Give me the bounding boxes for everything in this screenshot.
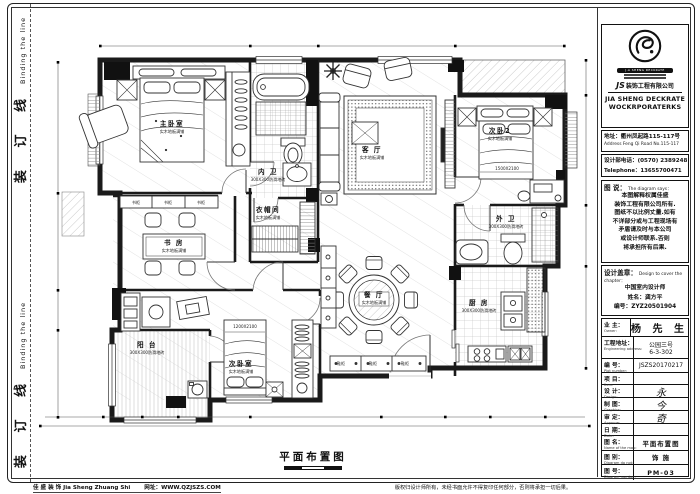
living-sofa <box>319 93 340 205</box>
row-label: 设 计：Design: <box>602 385 634 397</box>
small-label: 书柜 <box>197 199 205 205</box>
room-floor-spec: 实木地板满铺 <box>256 214 281 220</box>
row-value: JSZS20170217 <box>634 359 688 372</box>
small-label: 鞋柜 <box>401 360 409 366</box>
room-label: 阳 台 <box>137 340 157 349</box>
footer-company: 佳 盛 装 饰 Jia Sheng Zhuang Shi网址：WWW.QZJSZ… <box>33 483 221 493</box>
coffee-table <box>352 122 378 144</box>
room-label: 餐 厅 <box>364 290 384 299</box>
seal-text: 中国室内设计师姓名：龚方平编号：ZYZ20501904 <box>604 284 686 313</box>
company-logo-icon <box>625 27 665 65</box>
plan-title-block: 平面布置图 <box>263 449 363 470</box>
notes-header: 图 说： The diagram says： <box>604 182 686 192</box>
address-en: Address Feng Qi Road No.115-117 <box>604 142 686 147</box>
binding-cn: 装 订 线 <box>14 375 29 468</box>
floor-plan: 主卧室实木地板满铺内 卫300X300防滑地砖衣帽间实木地板满铺客 厅实木地板满… <box>33 8 595 474</box>
title-block-row: 制 图：Graphics:今 <box>602 398 688 411</box>
room-label: 主卧室 <box>160 119 184 128</box>
footer-copyright: 版权归设计师所有，未经书面允许不得复印任何部分，否则将承担一切后果。 <box>368 484 598 491</box>
room-floor-spec: 实木地板满铺 <box>160 128 185 134</box>
title-block-row: 编 号：Plot number:JSZS20170217 <box>602 359 688 373</box>
row-value: PM-03 <box>634 465 688 480</box>
logo-divider <box>608 92 682 93</box>
logo-tagline-bars <box>620 74 670 79</box>
notes-line: 本图解释权属佳盛 <box>604 192 686 201</box>
room-floor-spec: 实木地板满铺 <box>162 247 187 253</box>
notes-line: 或设计师联系.否则 <box>604 235 686 244</box>
small-label: 1200X2100 <box>233 324 257 329</box>
terrace-hatch <box>462 60 565 93</box>
row-value: 公园三号6-3-302 <box>634 337 688 358</box>
basin-inner <box>283 163 311 186</box>
binding-text-top: 装 订 线Binding the line <box>10 15 26 185</box>
room-floor-spec: 300X300防滑地砖 <box>462 307 497 313</box>
title-block-row: 图 号：Diagram number:PM-03 <box>602 465 688 480</box>
drawing-sheet: 装 订 线Binding the line 装 订 线Binding the l… <box>0 0 700 494</box>
row-value: 永 <box>634 385 688 397</box>
room-label: 客 厅 <box>361 145 382 154</box>
footer-website: 网址：WWW.QZJSZS.COM <box>144 485 221 491</box>
row-label: 图 号：Diagram number: <box>602 465 634 480</box>
small-label: 书柜 <box>164 199 172 205</box>
phone-cn: 设计部电话：(0570) 2389248 <box>604 156 686 164</box>
company-name-en-2: WOCKRPORATERKS <box>602 103 688 111</box>
small-label: 1500X2100 <box>495 166 519 171</box>
room-label: 衣帽间 <box>256 205 280 214</box>
room-floor-spec: 实木地板满铺 <box>360 154 385 160</box>
binding-en: Binding the line <box>19 302 27 369</box>
row-label: 工程地址：Engineering address: <box>602 337 634 358</box>
ac-platform <box>62 192 84 236</box>
master-wardrobe <box>226 72 250 166</box>
company-name-cn: JS装饰工程有限公司 <box>602 81 688 90</box>
title-block-row: 项 目：Item: <box>602 373 688 385</box>
room-floor-spec: 实木地板满铺 <box>488 135 513 141</box>
notes-line: 图纸不以比例丈量.如有 <box>604 209 686 218</box>
title-block-row: 业 主：Owner:杨 先 生 <box>602 319 688 337</box>
company-logo-box: J.A SHENG DECKRATE JS装饰工程有限公司 JIA SHENG … <box>601 24 689 128</box>
room-floor-spec: 300X300防滑地砖 <box>251 176 286 182</box>
small-label: 鞋柜 <box>337 360 345 366</box>
row-value: 平面布置图 <box>634 436 688 450</box>
binding-cn: 装 订 线 <box>14 90 29 183</box>
row-label: 项 目：Item: <box>602 373 634 384</box>
room-floor-spec: 实木地板满铺 <box>362 299 387 305</box>
company-name-en-1: JIA SHENG DECKRATE <box>602 95 688 103</box>
row-value <box>634 373 688 384</box>
title-block-table: 业 主：Owner:杨 先 生工程地址：Engineering address:… <box>601 318 689 477</box>
design-seal-box: 设计盖章： Design to cover the chapter： 中国室内设… <box>601 265 689 316</box>
bedroom3-bed <box>224 320 266 395</box>
row-label: 审 定：Approve: <box>602 411 634 423</box>
address-box: 地址：衢州凤起路115-117号 Address Feng Qi Road No… <box>601 130 689 152</box>
title-block-row: 图 别：Diagram do not:饰 施 <box>602 451 688 465</box>
address-cn: 地址：衢州凤起路115-117号 <box>604 132 686 140</box>
room-floor-spec: 300X300防滑地砖 <box>130 349 165 355</box>
seal-line: 编号：ZYZ20501904 <box>604 303 686 313</box>
living-rug <box>344 96 436 194</box>
row-value: 奇 <box>634 411 688 423</box>
logo-badge: J.A SHENG DECKRATE <box>617 68 673 73</box>
room-floor-spec: 300X300防滑地砖 <box>489 223 524 229</box>
phone-en: Telephone：13655700471 <box>604 166 686 174</box>
binding-en: Binding the line <box>19 17 27 84</box>
row-value <box>634 424 688 435</box>
sideboard <box>321 246 336 328</box>
seal-line: 中国室内设计师 <box>604 284 686 294</box>
bedroom3-wardrobe <box>292 320 313 398</box>
bathtub <box>253 74 309 100</box>
notes-text: 本图解释权属佳盛装饰工程有限公司所有.图纸不以比例丈量.如有不详部分或与工程现场… <box>604 192 686 252</box>
row-label: 图 名：Name of the map: <box>602 436 634 450</box>
row-value: 杨 先 生 <box>631 319 688 336</box>
logo-monogram: JS <box>616 81 625 90</box>
floor-ac-unit <box>266 382 283 397</box>
notes-line: 装饰工程有限公司所有. <box>604 201 686 210</box>
binding-text-bottom: 装 订 线Binding the line <box>10 300 26 470</box>
washing-machine <box>188 381 207 398</box>
scale-bar <box>263 466 363 470</box>
room-floor-spec: 实木地板满铺 <box>229 368 254 374</box>
title-block-row: 工程地址：Engineering address:公园三号6-3-302 <box>602 337 688 359</box>
room-label: 次卧室 <box>229 359 253 368</box>
title-block: J.A SHENG DECKRATE JS装饰工程有限公司 JIA SHENG … <box>601 24 691 477</box>
row-label: 编 号：Plot number: <box>602 359 634 372</box>
notes-line: 矛盾请及时与本公司 <box>604 226 686 235</box>
binding-margin-line <box>30 4 31 482</box>
row-label: 制 图：Graphics: <box>602 398 634 410</box>
room-label: 外 卫 <box>496 214 516 223</box>
row-label: 日 期：Date: <box>602 424 634 435</box>
room-label: 次卧2 <box>489 126 511 135</box>
row-label: 图 别：Diagram do not: <box>602 451 634 464</box>
plan-title: 平面布置图 <box>263 449 363 464</box>
title-block-row: 审 定：Approve:奇 <box>602 411 688 424</box>
seal-header: 设计盖章： Design to cover the chapter： <box>604 267 686 284</box>
room-label: 厨 房 <box>469 298 489 307</box>
plant-icon <box>324 62 342 80</box>
diagram-notes-box: 图 说： The diagram says： 本图解释权属佳盛装饰工程有限公司所… <box>601 180 689 263</box>
room-label: 书 房 <box>164 238 184 247</box>
shower-area <box>256 102 306 135</box>
title-block-row: 设 计：Design:永 <box>602 385 688 398</box>
notes-line: 将承担所有后果. <box>604 244 686 253</box>
row-value: 饰 施 <box>634 451 688 464</box>
small-label: 鞋柜 <box>369 360 377 366</box>
seal-line: 姓名：龚方平 <box>604 294 686 304</box>
small-label: 书柜 <box>132 199 140 205</box>
phone-box: 设计部电话：(0570) 2389248 Telephone：136557004… <box>601 154 689 177</box>
panel-divider-line <box>597 7 598 477</box>
room-label: 内 卫 <box>258 167 278 176</box>
title-block-row: 图 名：Name of the map:平面布置图 <box>602 436 688 451</box>
title-block-row: 日 期：Date: <box>602 424 688 436</box>
notes-line: 不详部分或与工程现场有 <box>604 218 686 227</box>
row-value: 今 <box>634 398 688 410</box>
row-label: 业 主：Owner: <box>602 319 631 336</box>
